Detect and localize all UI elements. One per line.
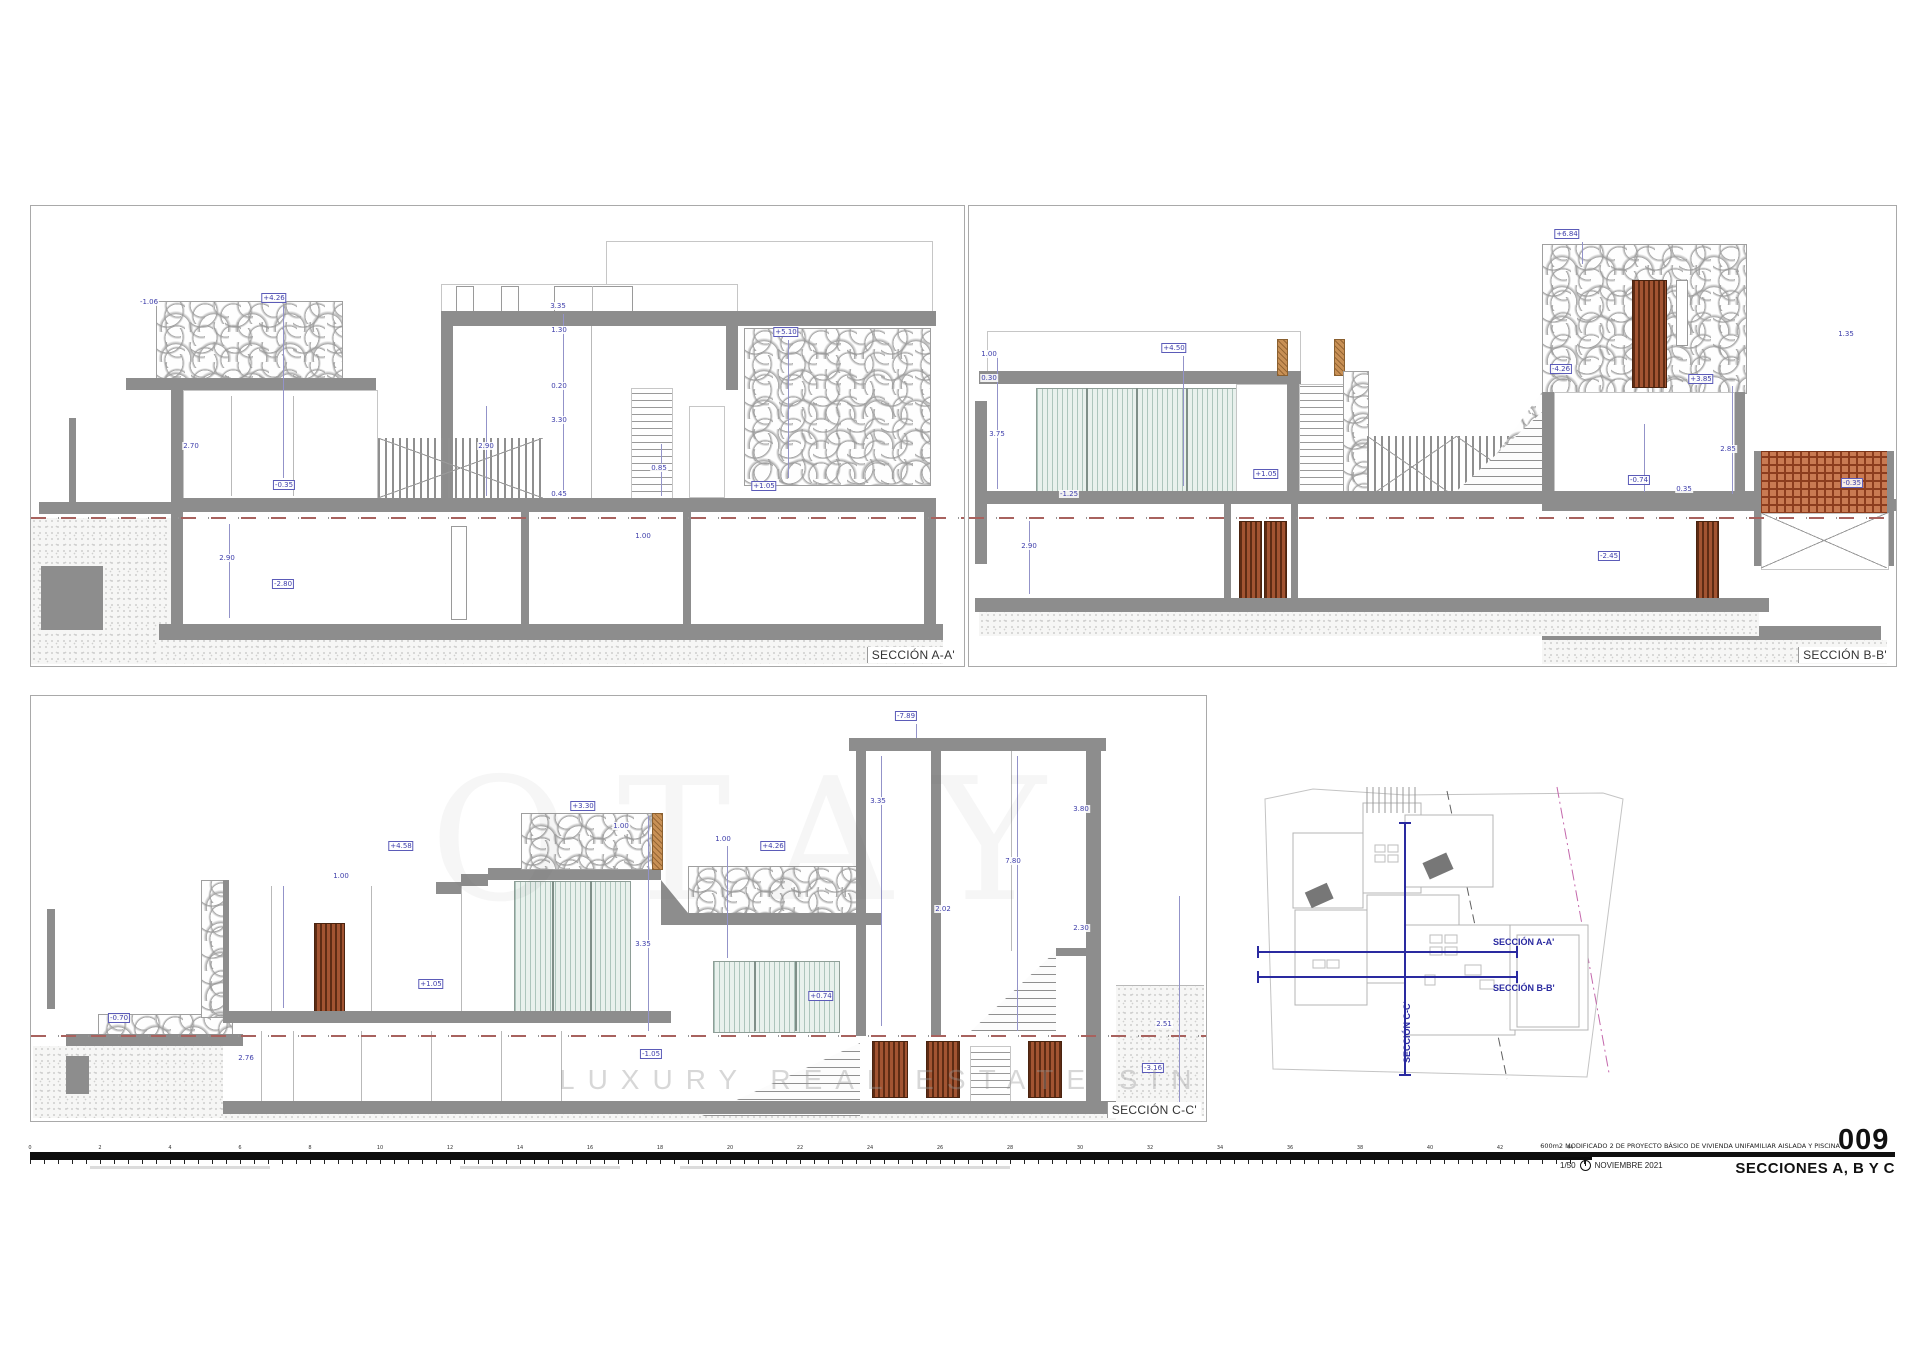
cross-brace	[1761, 513, 1887, 568]
basement-partition-line	[501, 1031, 502, 1101]
basement-partition-line	[431, 1031, 432, 1101]
stone-parapet	[688, 866, 858, 915]
dimension-label: -1.05	[640, 1049, 662, 1059]
dimension-line	[648, 816, 649, 1031]
dimension-label: 1.00	[612, 822, 630, 830]
dimension-line	[1029, 521, 1030, 594]
dimension-label: 1.35	[1837, 330, 1855, 338]
ruler-number: 8	[308, 1145, 311, 1151]
grade-line	[1116, 985, 1204, 986]
interior-stair	[631, 388, 673, 500]
wood-beam	[652, 813, 663, 870]
tower-wall	[856, 751, 866, 1036]
ruler-number: 30	[1077, 1145, 1083, 1151]
dimension-label: 0.85	[650, 464, 668, 472]
wall	[1287, 384, 1299, 494]
basement-wood-door	[1264, 521, 1287, 600]
mullion	[552, 881, 554, 1011]
basement-partition-line	[361, 1031, 362, 1101]
dimension-line	[1582, 242, 1583, 264]
dimension-label: +4.26	[760, 841, 785, 851]
section-label: SECCIÓN B-B'	[1798, 647, 1891, 663]
drawing-sheet: { "sheet": { "panels": [ {"id": "A-A'", …	[0, 0, 1920, 1357]
ruler-number: 20	[727, 1145, 733, 1151]
north-circle-icon	[1580, 1160, 1591, 1171]
partition-line	[371, 886, 372, 1011]
dimension-label: -7.89	[895, 711, 917, 721]
basement-wall	[924, 512, 936, 626]
glass-wall	[514, 881, 631, 1013]
wood-louver-window	[1632, 280, 1667, 388]
dimension-label: 3.35	[549, 302, 567, 310]
stone-parapet	[521, 813, 653, 870]
dimension-label: 2.02	[934, 905, 952, 913]
dimension-label: 2.90	[1020, 542, 1038, 550]
scale-value: 1/50	[1560, 1161, 1576, 1170]
dimension-label: -0.70	[108, 1013, 130, 1023]
roof-step	[436, 882, 461, 894]
dimension-label: 2.70	[182, 442, 200, 450]
stone-wall	[156, 301, 343, 383]
footing	[66, 1056, 89, 1094]
mullion	[795, 961, 797, 1031]
dimension-label: 2.30	[1072, 924, 1090, 932]
clerestory-window	[501, 286, 519, 313]
dimension-label: 7.80	[1004, 857, 1022, 865]
dimension-line	[283, 886, 284, 1008]
basement-wood-door	[926, 1041, 960, 1098]
wall	[1542, 392, 1554, 498]
basement-partition-line	[261, 1031, 262, 1101]
dimension-label: 1.00	[714, 835, 732, 843]
basement-partition-line	[561, 1031, 562, 1101]
basement-partition	[521, 512, 529, 624]
dimension-line	[486, 406, 487, 496]
mullion	[592, 286, 593, 311]
date-value: NOVIEMBRE 2021	[1595, 1161, 1663, 1170]
sheet-name: SECCIONES A, B Y C	[1735, 1160, 1895, 1177]
mullion	[590, 881, 592, 1011]
wall	[171, 390, 183, 502]
floor-slab	[171, 498, 936, 512]
section-cc-key-label: SECCIÓN C-C'	[1401, 1001, 1412, 1063]
dimension-label: 3.30	[550, 416, 568, 424]
stone-wall	[744, 328, 931, 486]
ruler-number: 6	[238, 1145, 241, 1151]
ruler-number: 0	[28, 1145, 31, 1151]
terrain-dashed-line	[31, 517, 964, 519]
dimension-label: 3.80	[1072, 805, 1090, 813]
scale-and-date: 1/50 NOVIEMBRE 2021	[1560, 1160, 1663, 1171]
wall	[726, 326, 738, 390]
ruler-note	[460, 1166, 620, 1169]
partition-line	[271, 886, 272, 1011]
dimension-label: -2.80	[272, 579, 294, 589]
upper-stair	[971, 951, 1056, 1031]
roof-slab	[979, 371, 1301, 384]
section-aa-panel: SECCIÓN A-A' +4.26-1.063.351.300.203.302…	[30, 205, 965, 667]
wood-beam	[1277, 339, 1288, 376]
ruler-note	[680, 1166, 1010, 1169]
dimension-label: 3.35	[634, 940, 652, 948]
dimension-label: +6.84	[1554, 229, 1579, 239]
dimension-line	[1017, 756, 1018, 1031]
dimension-label: +4.50	[1161, 343, 1186, 353]
roof-slab	[441, 311, 936, 326]
dimension-label: 2.90	[477, 442, 495, 450]
dimension-label: +1.05	[418, 979, 443, 989]
stair-landing	[1056, 948, 1086, 956]
stone-pier	[1343, 371, 1369, 500]
roof-step	[461, 874, 488, 886]
mullion	[1136, 388, 1138, 494]
basement-floor-slab	[975, 598, 1769, 612]
dimension-label: -1.25	[1059, 490, 1079, 498]
dimension-label: +4.26	[261, 293, 286, 303]
site-plan-key: SECCIÓN A-A' SECCIÓN B-B' SECCIÓN C-C'	[1255, 775, 1660, 1095]
dimension-label: -0.35	[273, 480, 295, 490]
ruler-number: 14	[517, 1145, 523, 1151]
basement-stair	[970, 1046, 1011, 1103]
dimension-line	[1183, 356, 1184, 486]
roof-slab	[126, 378, 376, 390]
dimension-line	[1179, 896, 1180, 1111]
wall	[223, 880, 229, 1016]
ruler-number: 12	[447, 1145, 453, 1151]
mullion	[1186, 388, 1188, 494]
partition-line	[231, 396, 232, 496]
dimension-label: 1.00	[980, 350, 998, 358]
basement-partition	[683, 512, 691, 624]
dimension-label: 0.20	[550, 382, 568, 390]
ground-hatch	[159, 638, 943, 664]
dimension-line	[727, 846, 728, 958]
ground-hatch	[223, 1114, 1116, 1120]
ruler-note	[90, 1166, 270, 1169]
terrain-dashed-line	[31, 1035, 1206, 1037]
dimension-label: -0.35	[1841, 478, 1863, 488]
ground-hatch	[1116, 986, 1204, 1116]
basement-wood-door	[1696, 521, 1719, 600]
basement-floor-slab	[159, 624, 943, 640]
building-outline	[1293, 803, 1588, 1035]
basement-wall	[171, 512, 183, 626]
dimension-line	[1732, 386, 1733, 494]
post	[69, 418, 76, 514]
section-aa-key-label: SECCIÓN A-A'	[1493, 936, 1554, 947]
title-block-row: 1/50 NOVIEMBRE 2021 SECCIONES A, B Y C	[1560, 1160, 1895, 1177]
dimension-label: +1.05	[751, 481, 776, 491]
mullion	[1086, 388, 1088, 494]
dimension-label: +3.85	[1688, 374, 1713, 384]
dimension-label: 2.85	[1719, 445, 1737, 453]
dimension-label: 0.35	[1675, 485, 1693, 493]
dimension-line	[229, 524, 230, 618]
basement-wood-door	[872, 1041, 908, 1098]
dimension-label: 2.76	[237, 1054, 255, 1062]
terracotta-lattice	[1759, 451, 1891, 515]
dimension-label: 2.51	[1155, 1020, 1173, 1028]
title-block-rule	[1560, 1152, 1895, 1157]
stair-shaft	[1299, 384, 1345, 500]
mullion	[754, 961, 756, 1031]
dimension-label: +0.74	[808, 991, 833, 1001]
dimension-label: +5.10	[773, 327, 798, 337]
ruler-number: 18	[657, 1145, 663, 1151]
footing	[41, 566, 103, 630]
partition-line	[1011, 751, 1012, 951]
dimension-label: -4.26	[1550, 364, 1572, 374]
dimension-line	[788, 340, 789, 478]
basement-wood-door	[1028, 1041, 1062, 1098]
terrain-dashed-line	[969, 517, 1896, 519]
dimension-label: -2.45	[1598, 551, 1620, 561]
post	[1754, 451, 1761, 566]
dimension-label: 0.45	[550, 490, 568, 498]
clerestory-window	[456, 286, 474, 313]
dimension-line	[916, 724, 917, 738]
roof-parapet	[987, 331, 1301, 373]
ruler-number: 26	[937, 1145, 943, 1151]
dimension-label: 1.30	[550, 326, 568, 334]
basement-door	[451, 526, 467, 620]
basement-floor-slab	[223, 1101, 1116, 1114]
dimension-label: -3.16	[1142, 1063, 1164, 1073]
roof-slab	[849, 738, 1106, 751]
door-frame	[689, 406, 725, 498]
section-label: SECCIÓN A-A'	[867, 647, 959, 663]
ruler-number: 32	[1147, 1145, 1153, 1151]
dimension-label: 3.75	[988, 430, 1006, 438]
dimension-label: -1.06	[139, 298, 159, 306]
partition-line	[461, 886, 462, 1011]
ruler-number: 16	[587, 1145, 593, 1151]
dimension-line	[283, 306, 284, 478]
tower-wall	[931, 751, 941, 1036]
project-title: 600m2 MODIFICADO 2 DE PROYECTO BÁSICO DE…	[1280, 1142, 1840, 1150]
dimension-label: 1.00	[332, 872, 350, 880]
retaining-wall	[975, 401, 987, 564]
roof-slab	[661, 913, 881, 925]
basement-partition-line	[293, 1031, 294, 1101]
ground-hatch	[33, 1046, 223, 1118]
ruler-number: 34	[1217, 1145, 1223, 1151]
wood-door	[314, 923, 345, 1013]
ruler-number: 4	[168, 1145, 171, 1151]
ruler-number: 10	[377, 1145, 383, 1151]
ruler-number: 24	[867, 1145, 873, 1151]
section-bb-key-label: SECCIÓN B-B'	[1493, 982, 1555, 993]
slit-window	[1676, 280, 1688, 346]
dimension-label: -0.74	[1628, 475, 1650, 485]
partition-line	[591, 326, 592, 498]
dimension-label: +1.05	[1253, 469, 1278, 479]
dimension-label: 2.90	[218, 554, 236, 562]
dimension-label: +4.58	[388, 841, 413, 851]
cross-brace	[1367, 436, 1457, 498]
basement-wood-door	[1239, 521, 1262, 600]
cross-brace	[378, 438, 543, 498]
ground-hatch	[979, 612, 1759, 636]
interior-room	[1236, 384, 1289, 496]
post	[47, 909, 55, 1009]
roof-slope	[661, 880, 688, 913]
section-label: SECCIÓN C-C'	[1107, 1102, 1201, 1118]
dimension-label: 1.00	[634, 532, 652, 540]
dimension-label: 3.35	[869, 797, 887, 805]
ruler-number: 2	[98, 1145, 101, 1151]
section-bb-panel: SECCIÓN B-B' 1.000.303.75-1.25+4.50+1.05…	[968, 205, 1897, 667]
stone-wall	[201, 880, 225, 1018]
ruler-number: 22	[797, 1145, 803, 1151]
dimension-label: 0.30	[980, 374, 998, 382]
floor-slab	[223, 1011, 671, 1023]
section-cc-panel: LUXURY REAL ESTATE SINCE SECCIÓN C-C' -7…	[30, 695, 1207, 1122]
dimension-label: +3.30	[570, 801, 595, 811]
dimension-line	[563, 314, 564, 491]
title-block: 600m2 MODIFICADO 2 DE PROYECTO BÁSICO DE…	[1280, 1118, 1895, 1188]
ruler-number: 28	[1007, 1145, 1013, 1151]
terrace-slab	[39, 502, 171, 514]
